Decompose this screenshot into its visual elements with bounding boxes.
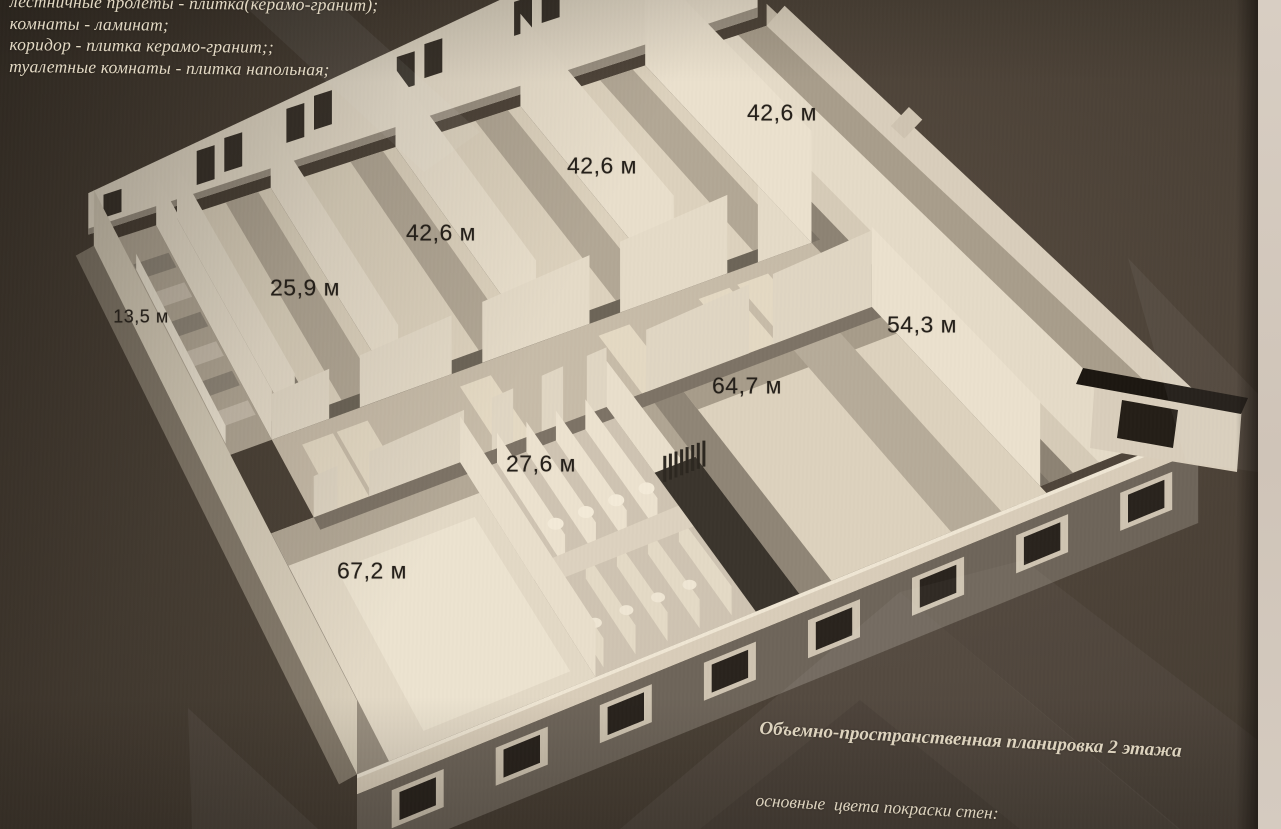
entry-stair-railing: [663, 456, 666, 482]
toilet-fixture: [608, 494, 624, 506]
room-area-label: 67,2 м: [337, 558, 407, 585]
entry-stair-railing: [686, 447, 689, 473]
entry-stair-railing: [675, 452, 678, 478]
room-area-label: 13,5 м: [113, 307, 168, 328]
back-window: [314, 90, 332, 130]
room-area-label: 42,6 м: [567, 153, 637, 180]
toilet-fixture: [619, 605, 633, 615]
back-window: [286, 103, 304, 143]
room-area-label: 27,6 м: [506, 451, 576, 478]
caption-title: Объемно-пространственная планировка 2 эт…: [759, 717, 1270, 769]
room-area-label: 42,6 м: [747, 100, 817, 127]
materials-note: лестничные пролеты - плитка(керамо-грани…: [9, 0, 570, 83]
room-area-label: 42,6 м: [406, 220, 476, 247]
room-area-label: 54,3 м: [887, 312, 957, 339]
background-wall-strip: [1258, 0, 1281, 829]
watermark: [188, 708, 318, 829]
toilet-fixture: [548, 518, 564, 530]
photographed-page: лестничные пролеты - плитка(керамо-грани…: [0, 0, 1281, 829]
toilet-fixture: [683, 580, 697, 590]
room-area-label: 64,7 м: [712, 373, 782, 400]
toilet-fixture: [578, 506, 594, 518]
page-edge-shadow: [1236, 0, 1258, 829]
entry-stair-railing: [669, 454, 672, 480]
room-area-label: 25,9 м: [270, 275, 340, 302]
back-window: [224, 132, 242, 172]
back-window: [197, 145, 215, 185]
entry-stair-railing: [691, 445, 694, 471]
toilet-fixture: [651, 592, 665, 602]
toilet-fixture: [639, 482, 655, 494]
entry-stair-railing: [702, 441, 705, 467]
entry-stair-railing: [697, 443, 700, 469]
corridor-wall: [492, 388, 513, 450]
caption-subtitle: основные цвета покраски стен:: [755, 789, 1265, 829]
corridor-wall: [587, 347, 607, 414]
entry-stair-railing: [680, 449, 683, 475]
